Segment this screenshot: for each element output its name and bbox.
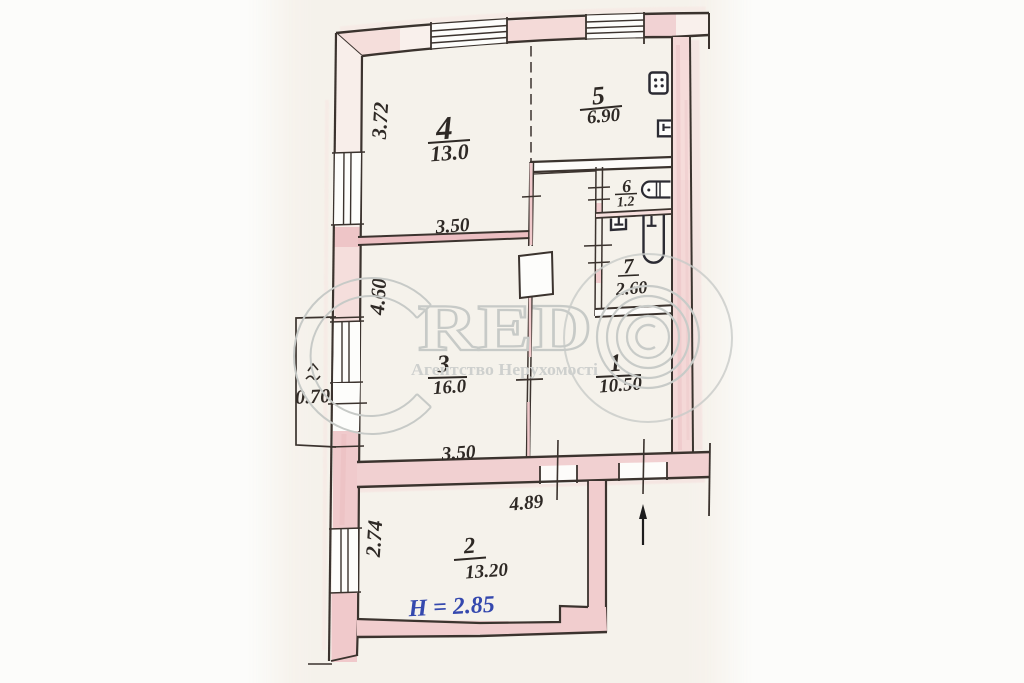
svg-text:16.0: 16.0	[432, 376, 467, 399]
svg-text:6.90: 6.90	[586, 105, 621, 129]
svg-text:13.20: 13.20	[465, 560, 510, 584]
svg-text:13.0: 13.0	[429, 139, 469, 167]
svg-text:Агентство Нерухомості: Агентство Нерухомості	[411, 360, 598, 379]
svg-text:2.74: 2.74	[361, 519, 388, 558]
svg-text:3.50: 3.50	[440, 442, 477, 465]
svg-text:3.72: 3.72	[367, 101, 394, 141]
svg-text:H = 2.85: H = 2.85	[407, 592, 496, 623]
svg-text:4.89: 4.89	[507, 491, 544, 516]
svg-text:1.2: 1.2	[617, 194, 636, 210]
svg-text:2: 2	[462, 533, 476, 559]
svg-text:3.50: 3.50	[434, 215, 471, 238]
